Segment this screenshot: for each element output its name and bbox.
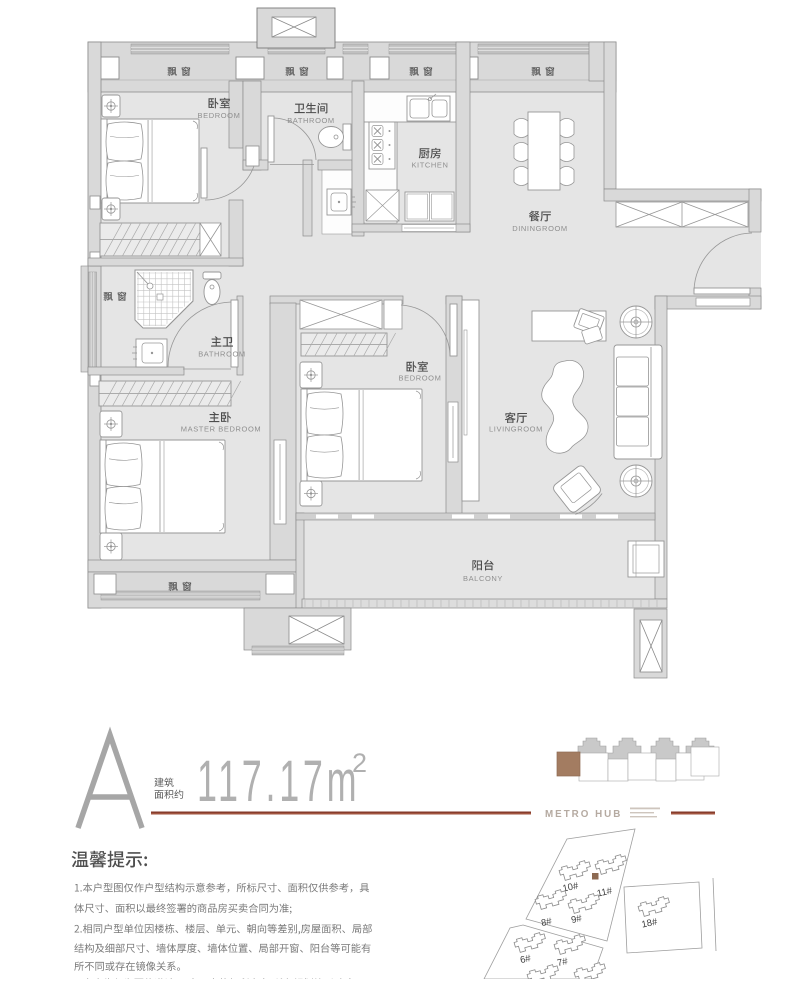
svg-text:BATHROOM: BATHROOM [287, 116, 335, 125]
svg-text:METRO HUB: METRO HUB [545, 809, 622, 820]
svg-text:2: 2 [352, 748, 367, 778]
svg-text:BALCONY: BALCONY [463, 574, 503, 583]
svg-text:BEDROOM: BEDROOM [399, 374, 442, 383]
svg-text:LIVINGROOM: LIVINGROOM [489, 425, 543, 434]
svg-text:BATHROOM: BATHROOM [198, 350, 246, 359]
svg-text:117.17m: 117.17m [197, 749, 360, 814]
svg-text:BEDROOM: BEDROOM [198, 111, 241, 120]
svg-text:MASTER BEDROOM: MASTER BEDROOM [181, 425, 262, 434]
svg-text:KITCHEN: KITCHEN [411, 161, 448, 170]
svg-text:DININGROOM: DININGROOM [512, 224, 568, 233]
